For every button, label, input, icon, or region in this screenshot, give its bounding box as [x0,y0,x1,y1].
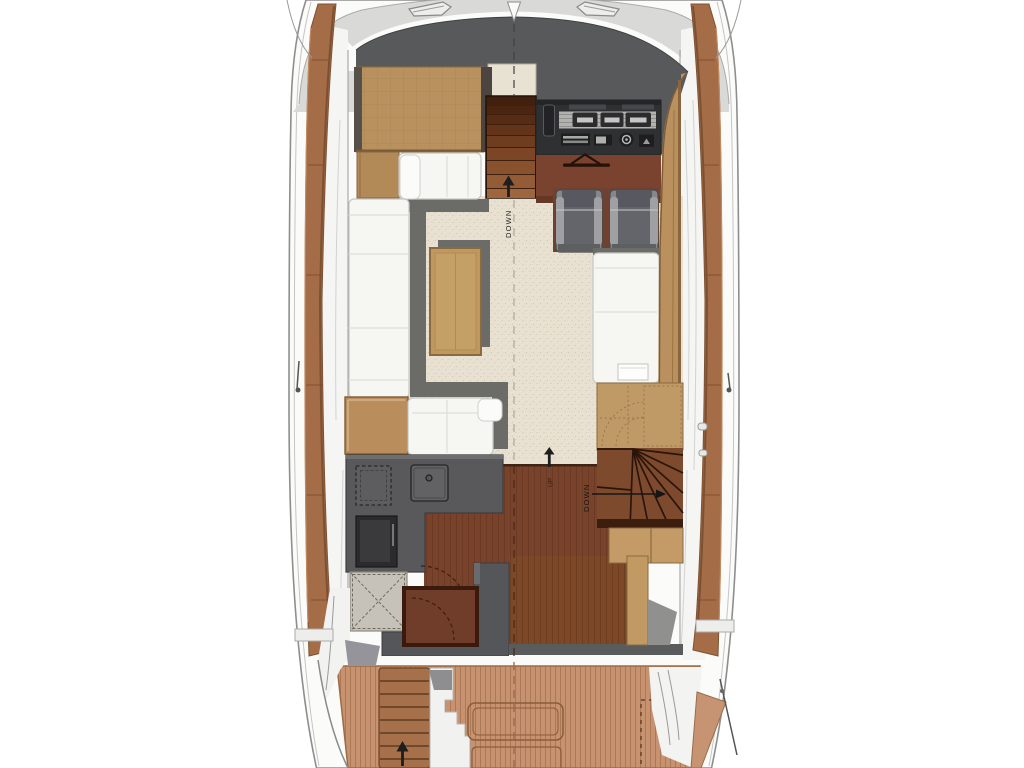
svg-text:DOWN: DOWN [504,209,513,238]
svg-text:DOWN: DOWN [582,483,591,512]
svg-text:UP: UP [548,478,555,487]
